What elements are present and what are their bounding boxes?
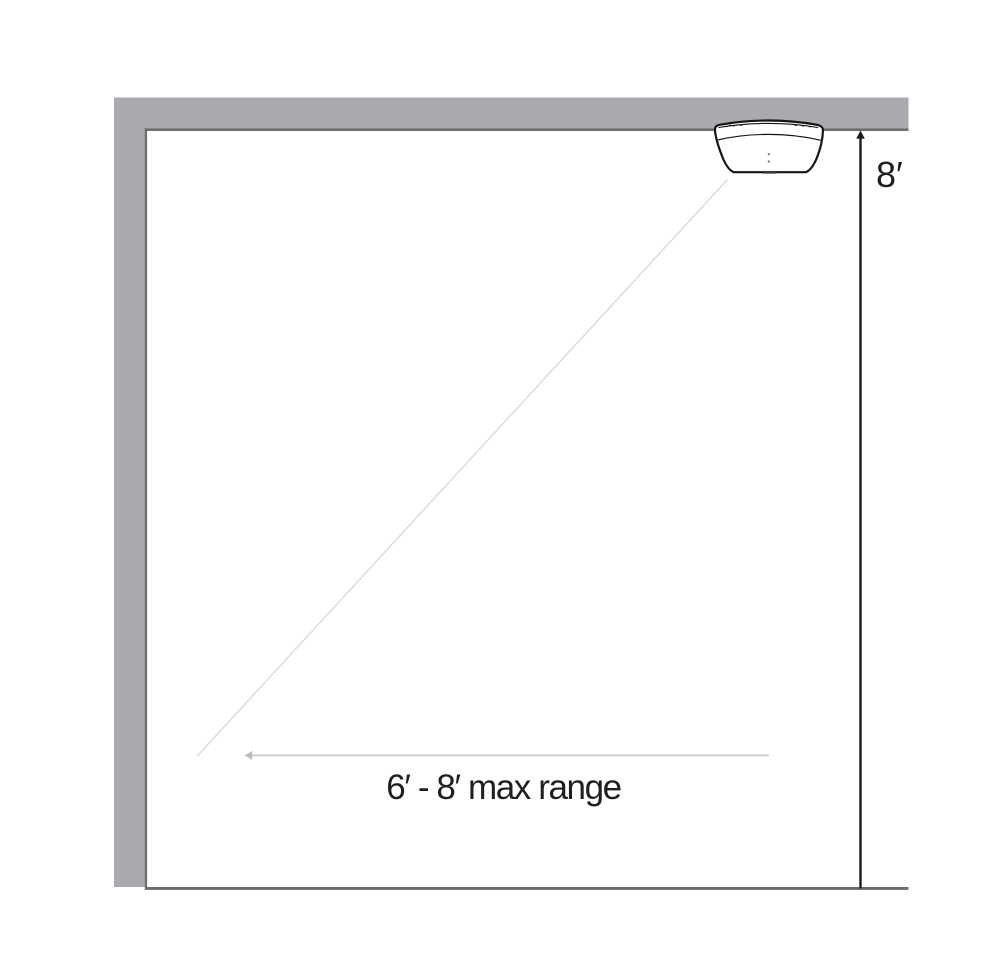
svg-text:8′: 8′	[876, 154, 903, 195]
svg-text:6′ - 8′ max range: 6′ - 8′ max range	[386, 768, 620, 807]
